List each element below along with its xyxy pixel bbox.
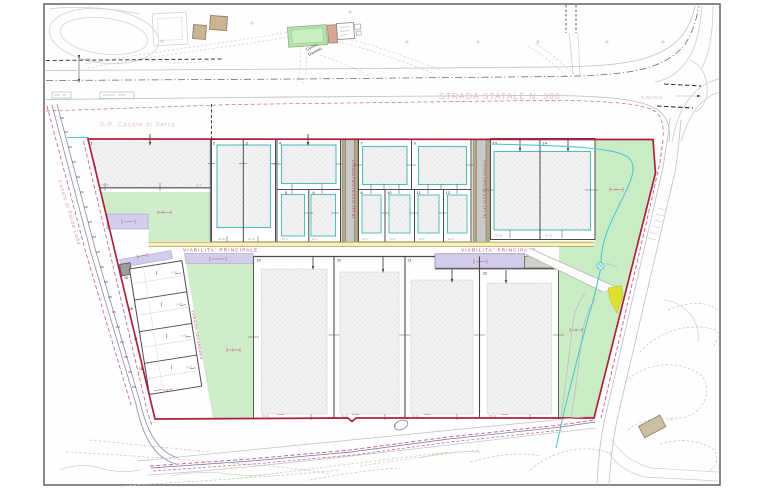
svg-text:22: 22 — [483, 272, 487, 276]
svg-text:S.MARIA: S.MARIA — [641, 95, 663, 100]
svg-text:12.0: 12.0 — [419, 237, 425, 241]
svg-text:STRADA PARCHEGGIO ZP1 A1: STRADA PARCHEGGIO ZP1 A1 — [483, 160, 487, 219]
svg-text:50.00: 50.00 — [495, 234, 502, 238]
svg-text:STRADA STATALE N. 388: STRADA STATALE N. 388 — [439, 91, 561, 101]
svg-text:pozzo: pozzo — [83, 57, 91, 61]
svg-text:20: 20 — [337, 259, 341, 263]
svg-text:VIABILITA' PRINCIPALE: VIABILITA' PRINCIPALE — [183, 248, 258, 253]
svg-text:14: 14 — [543, 141, 548, 146]
svg-text:12: 12 — [446, 190, 451, 195]
svg-text:50.00: 50.00 — [262, 414, 269, 418]
svg-text:20.0: 20.0 — [312, 237, 318, 241]
svg-text:15: 15 — [124, 276, 128, 280]
svg-text:STRADA PARCHEGGIO ZP1 A1: STRADA PARCHEGGIO ZP1 A1 — [351, 160, 355, 219]
svg-text:12.0: 12.0 — [362, 237, 368, 241]
svg-text:10: 10 — [387, 190, 392, 195]
svg-text:57.00: 57.00 — [101, 183, 109, 187]
svg-text:S.P. Canale di Serra: S.P. Canale di Serra — [100, 122, 176, 129]
svg-text:21: 21 — [408, 259, 412, 263]
svg-text:21.0: 21.0 — [196, 183, 202, 187]
svg-text:19: 19 — [257, 259, 261, 263]
svg-text:40.00: 40.00 — [248, 237, 255, 241]
svg-text:50.00: 50.00 — [545, 234, 552, 238]
svg-text:20.0: 20.0 — [282, 237, 288, 241]
svg-text:12.0: 12.0 — [390, 237, 396, 241]
svg-text:40.00: 40.00 — [218, 237, 225, 241]
svg-text:12.0: 12.0 — [448, 237, 454, 241]
